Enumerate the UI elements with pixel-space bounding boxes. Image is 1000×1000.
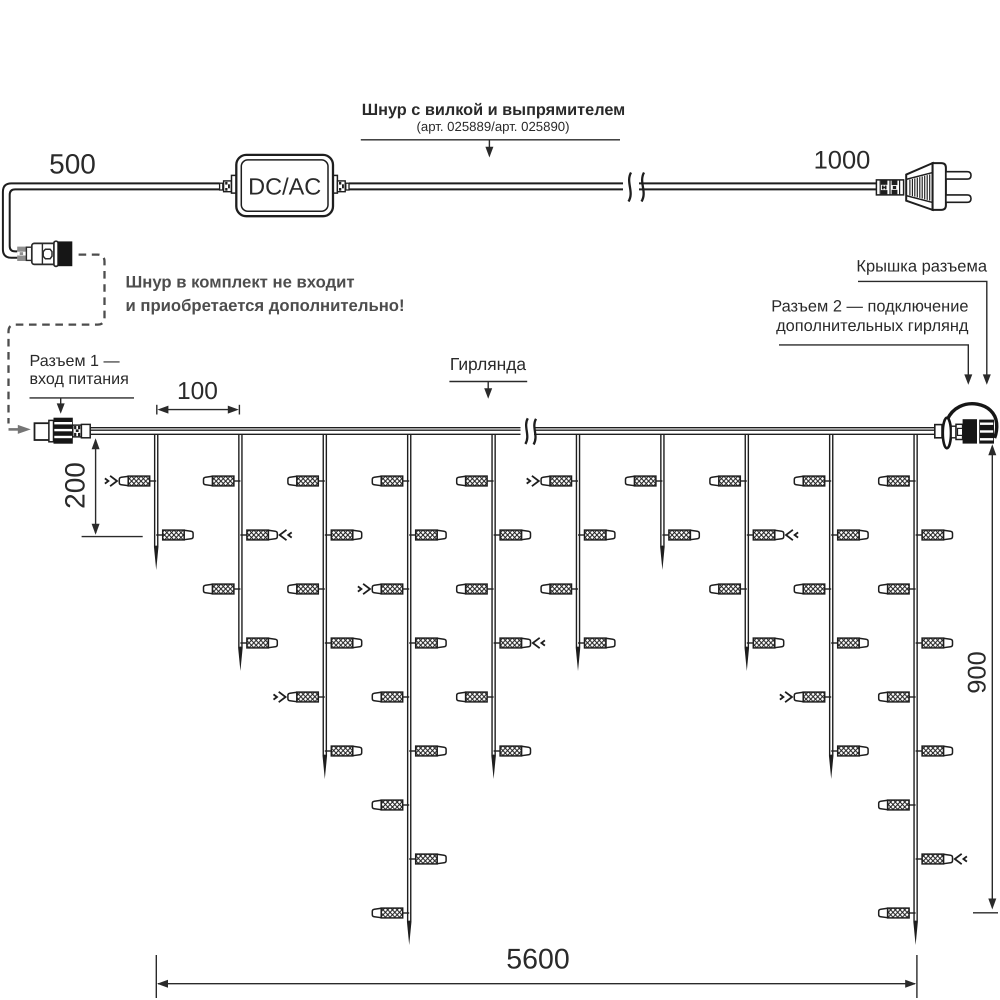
svg-text:вход питания: вход питания xyxy=(30,370,129,388)
svg-text:Разъем 1 —: Разъем 1 — xyxy=(30,352,121,370)
svg-text:и приобретается дополнительно!: и приобретается дополнительно! xyxy=(126,296,405,315)
svg-text:100: 100 xyxy=(177,378,218,405)
svg-text:500: 500 xyxy=(49,149,96,180)
svg-text:DC/AC: DC/AC xyxy=(248,174,321,200)
svg-text:дополнительных гирлянд: дополнительных гирлянд xyxy=(776,317,969,335)
svg-text:Разъем 2 — подключение: Разъем 2 — подключение xyxy=(771,298,968,316)
svg-text:5600: 5600 xyxy=(506,944,569,976)
svg-text:Гирлянда: Гирлянда xyxy=(450,354,527,374)
svg-text:Шнур в комплект не входит: Шнур в комплект не входит xyxy=(126,273,355,292)
svg-text:Шнур с вилкой и выпрямителем: Шнур с вилкой и выпрямителем xyxy=(362,101,625,119)
svg-text:Крышка разъема: Крышка разъема xyxy=(856,258,987,276)
svg-text:(арт. 025889/арт. 025890): (арт. 025889/арт. 025890) xyxy=(416,119,569,134)
svg-text:900: 900 xyxy=(963,651,991,694)
svg-text:200: 200 xyxy=(60,462,91,509)
svg-text:1000: 1000 xyxy=(814,147,871,175)
